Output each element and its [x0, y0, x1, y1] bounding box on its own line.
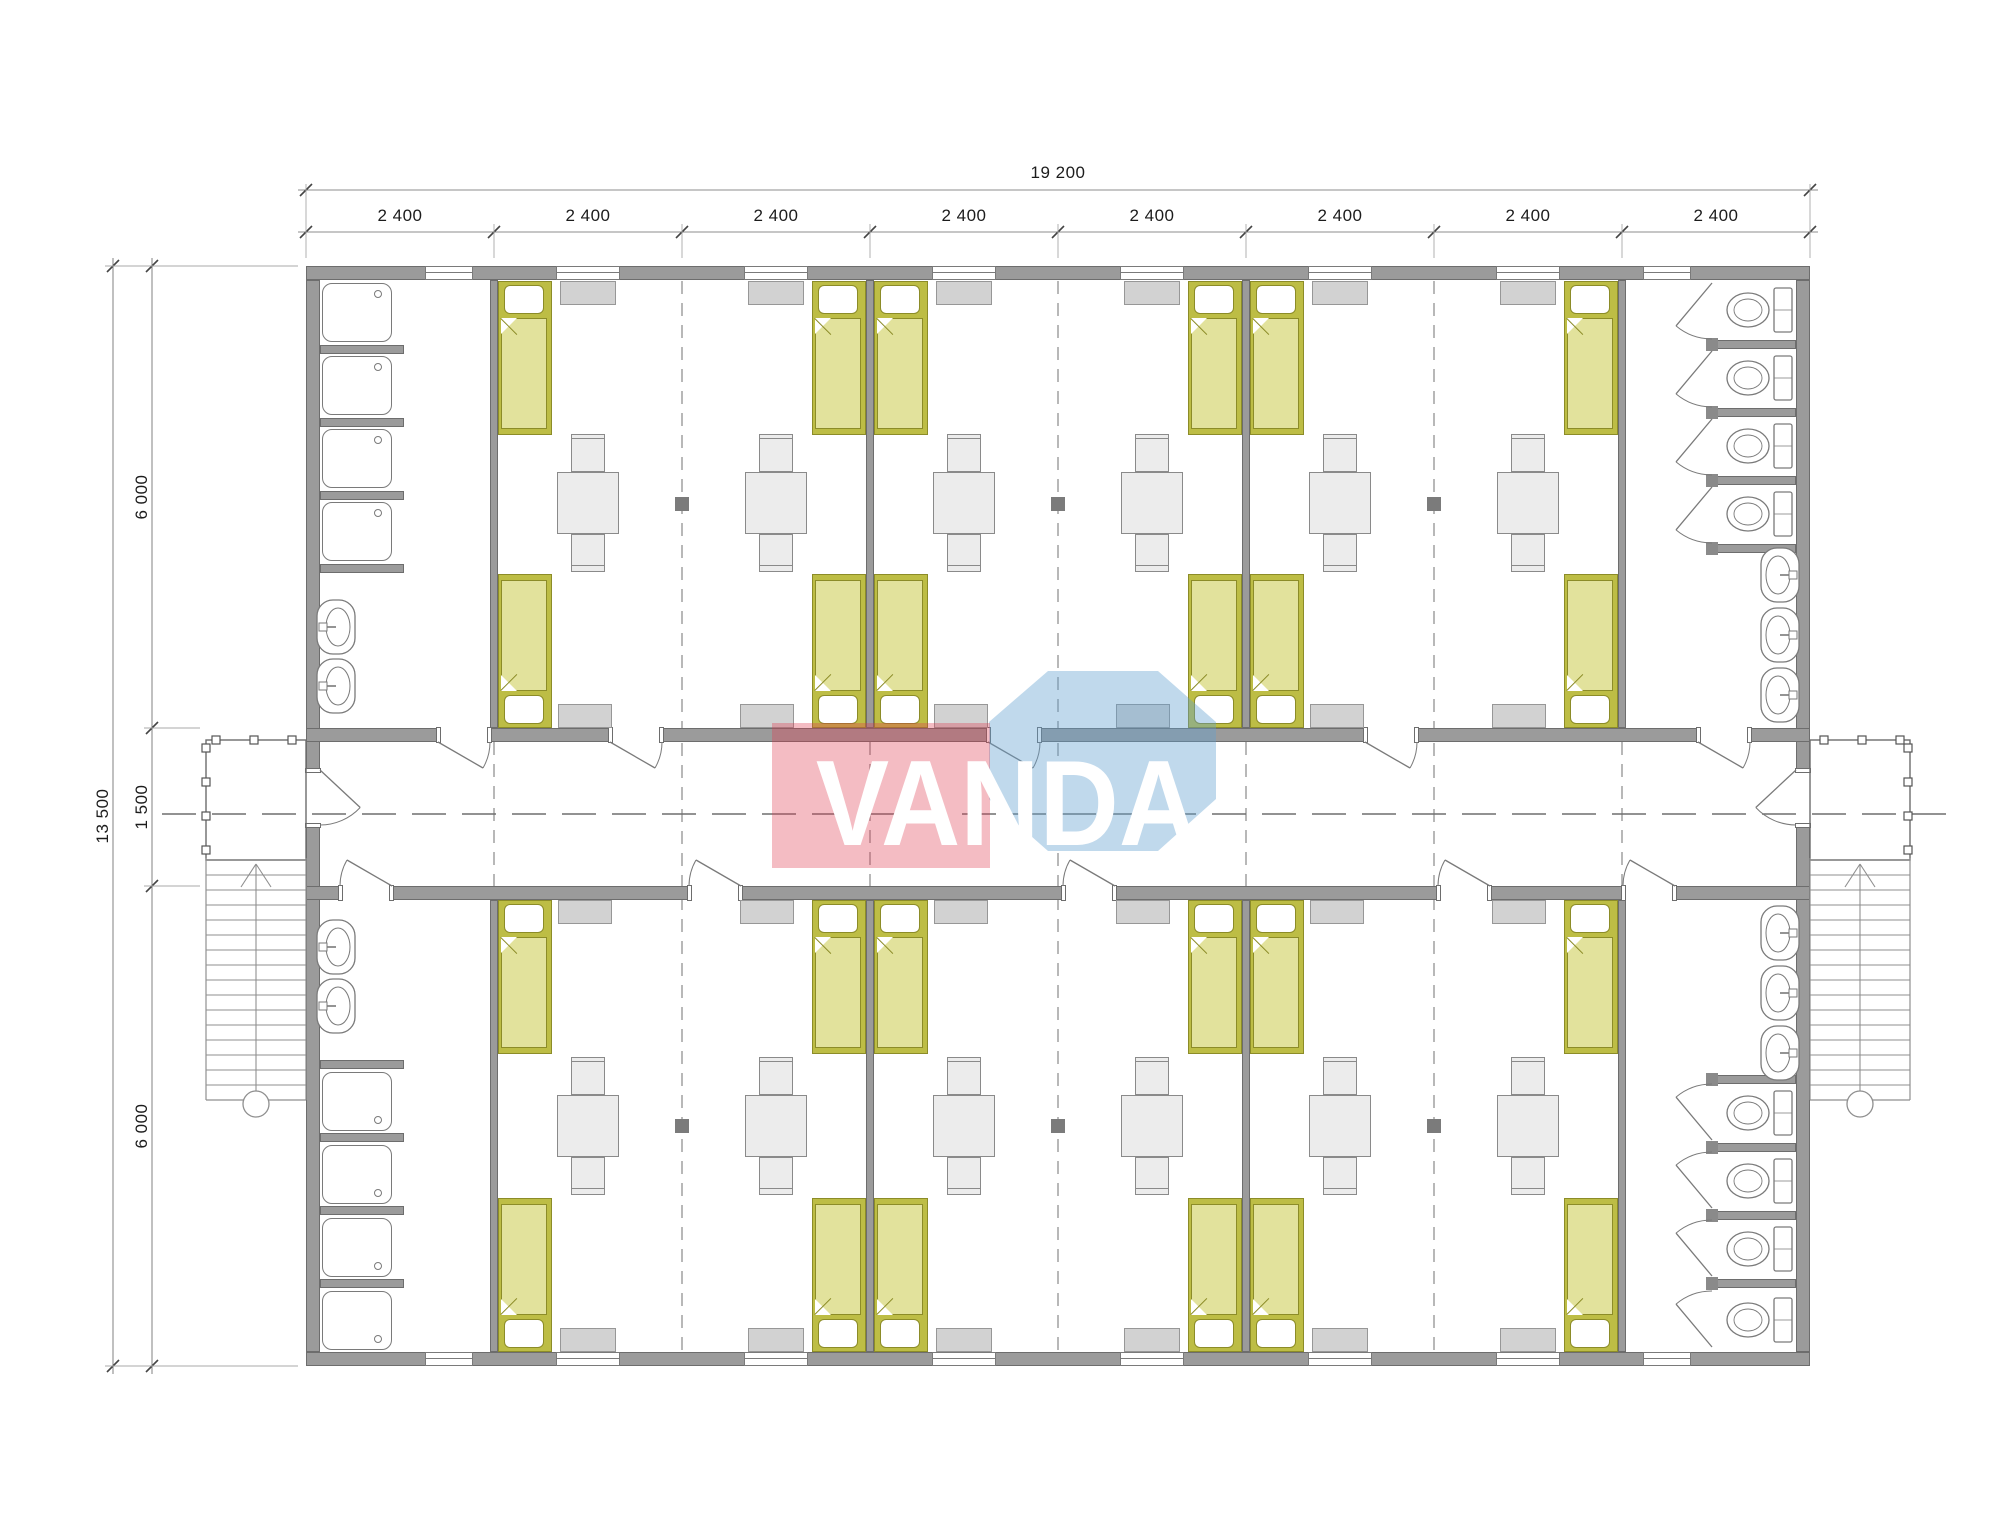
- watermark-text: VANDA: [778, 742, 1237, 864]
- floor-plan: VANDA 19 200 2 4002 4002 4002 4002 4002 …: [0, 0, 2000, 1539]
